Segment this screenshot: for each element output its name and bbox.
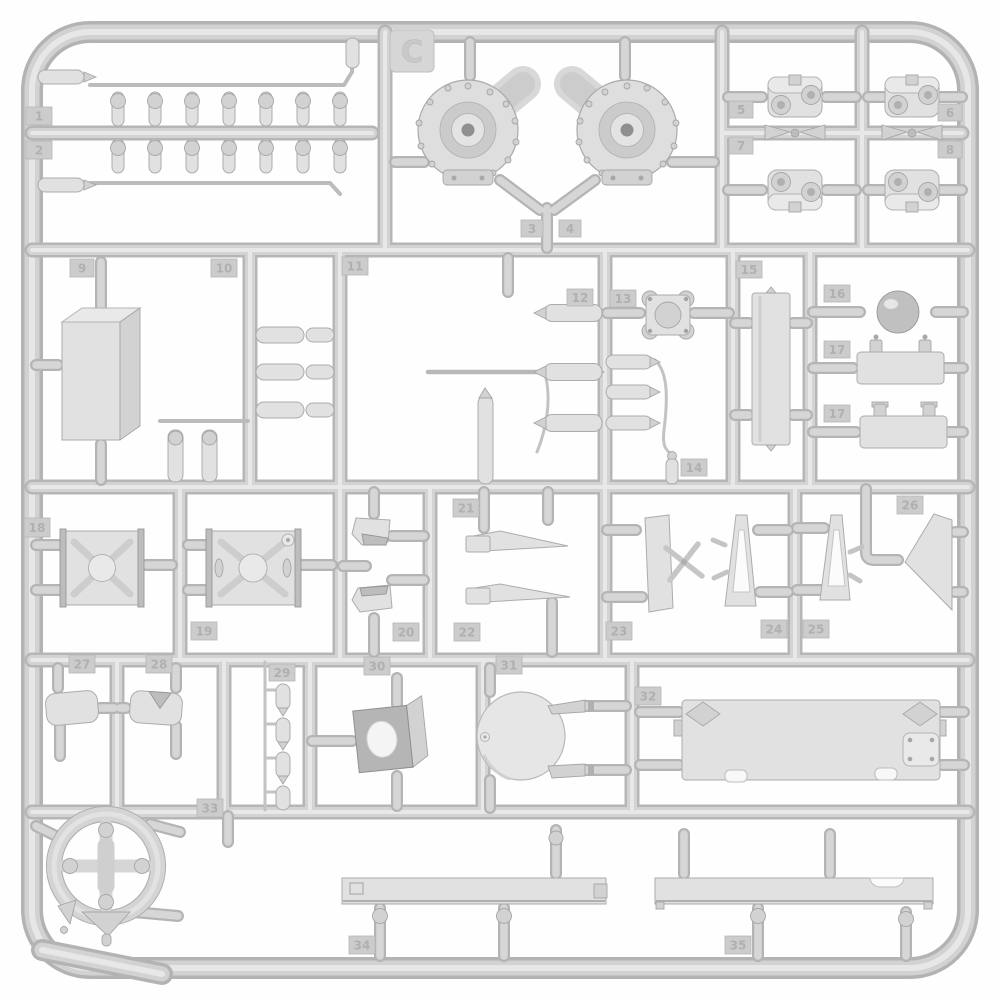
- part-tag-2: 2: [26, 141, 52, 159]
- part-round-hatch: [45, 690, 100, 726]
- part-tag-11: 11: [342, 257, 368, 275]
- svg-text:30: 30: [369, 660, 386, 674]
- svg-text:15: 15: [741, 263, 758, 277]
- part-spoked-ring-wheel: [47, 807, 166, 947]
- svg-text:10: 10: [216, 262, 233, 276]
- svg-text:5: 5: [737, 103, 745, 117]
- svg-text:16: 16: [829, 287, 846, 301]
- part-tag-7: 7: [729, 137, 753, 154]
- svg-text:3: 3: [528, 222, 536, 236]
- part-tag-18: 18: [24, 518, 50, 537]
- svg-text:17: 17: [829, 343, 846, 357]
- svg-text:21: 21: [458, 502, 475, 516]
- part-tag-16: 16: [824, 285, 850, 302]
- part-round-hatch-notched: [129, 690, 183, 726]
- part-clamp-plate-b: [860, 402, 947, 448]
- part-circular-turret-floor: [477, 692, 594, 780]
- part-engine-deck-panel: [674, 700, 946, 782]
- part-tag-26: 26: [897, 496, 923, 514]
- svg-text:24: 24: [766, 623, 783, 637]
- part-paired-cylinders: [256, 327, 334, 418]
- svg-text:4: 4: [566, 222, 574, 236]
- part-fender-strip-left: [342, 878, 607, 904]
- part-tag-20: 20: [393, 623, 419, 641]
- part-tag-23: 23: [606, 622, 632, 640]
- part-tag-28: 28: [146, 655, 172, 673]
- part-mount-plate-with-hole: [352, 696, 429, 773]
- part-bolted-square-plate: [642, 291, 694, 339]
- part-x-ribbed-panel-with-ports: [206, 529, 301, 607]
- svg-text:25: 25: [808, 623, 825, 637]
- part-x-ribbed-panel: [60, 529, 144, 607]
- part-tag-21: 21: [453, 499, 479, 517]
- svg-text:34: 34: [354, 939, 371, 953]
- part-tag-25: 25: [803, 620, 829, 638]
- svg-text:8: 8: [946, 143, 954, 157]
- part-clamp-plate-a: [857, 335, 944, 385]
- part-triangular-bracket-a: [713, 515, 756, 606]
- svg-text:27: 27: [74, 658, 91, 672]
- part-antenna-and-barrels: [428, 305, 604, 485]
- part-tag-33: 33: [197, 799, 223, 817]
- part-tag-9: 9: [70, 259, 94, 277]
- part-final-drive-housing-left: [416, 80, 523, 185]
- sprue-photo: C 1 2 3 4 5 6 7 8 9 10 11 12 13 14 15 16…: [0, 0, 1000, 1000]
- part-tag-17b: 17: [824, 405, 850, 422]
- svg-text:29: 29: [274, 666, 291, 680]
- svg-text:6: 6: [946, 106, 954, 120]
- svg-text:28: 28: [151, 658, 168, 672]
- part-tag-3: 3: [521, 220, 543, 237]
- part-tapered-plate-with-cross: [645, 515, 702, 612]
- sprue-c-illustration: C 1 2 3 4 5 6 7 8 9 10 11 12 13 14 15 16…: [0, 0, 1000, 1000]
- svg-text:22: 22: [459, 626, 476, 640]
- part-fender-wedges: [466, 531, 570, 604]
- part-tag-17a: 17: [824, 341, 850, 358]
- part-tag-12: 12: [567, 289, 593, 306]
- part-tag-22: 22: [454, 623, 480, 641]
- part-long-flat-plate: [752, 287, 790, 451]
- part-tag-4: 4: [559, 220, 581, 237]
- sprue-letter-tag: C: [390, 30, 434, 72]
- svg-text:32: 32: [640, 690, 657, 704]
- part-tag-13: 13: [610, 290, 636, 307]
- part-tag-10: 10: [211, 259, 237, 277]
- part-tag-34: 34: [349, 936, 375, 954]
- part-bullet-cylinders: [606, 355, 660, 430]
- svg-text:7: 7: [737, 139, 745, 153]
- svg-text:20: 20: [398, 626, 415, 640]
- svg-text:11: 11: [347, 260, 364, 274]
- part-tag-6: 6: [938, 104, 962, 121]
- part-tag-31: 31: [496, 656, 522, 674]
- part-tag-32: 32: [635, 687, 661, 705]
- part-bullet-set-of-four: [276, 684, 290, 810]
- part-sphere: [877, 291, 919, 333]
- part-tag-24: 24: [761, 620, 787, 638]
- part-tag-8: 8: [938, 141, 962, 158]
- part-tag-14: 14: [681, 459, 707, 476]
- svg-text:23: 23: [611, 625, 628, 639]
- part-tag-5: 5: [729, 101, 753, 118]
- svg-text:9: 9: [78, 262, 86, 276]
- svg-text:13: 13: [615, 292, 632, 306]
- part-tag-19: 19: [191, 622, 217, 640]
- svg-text:33: 33: [202, 802, 219, 816]
- svg-text:17: 17: [829, 407, 846, 421]
- svg-text:26: 26: [902, 499, 919, 513]
- part-large-wedge-plate: [905, 514, 952, 610]
- svg-text:35: 35: [730, 939, 747, 953]
- svg-text:2: 2: [35, 144, 43, 158]
- svg-text:19: 19: [196, 625, 213, 639]
- part-tag-27: 27: [69, 655, 95, 673]
- svg-text:12: 12: [572, 291, 589, 305]
- svg-text:31: 31: [501, 659, 518, 673]
- svg-text:1: 1: [35, 110, 43, 124]
- part-tag-35: 35: [725, 936, 751, 954]
- part-tag-29: 29: [269, 664, 295, 681]
- part-tag-1: 1: [26, 107, 52, 125]
- part-fender-strip-right: [655, 878, 933, 909]
- part-small-bottle: [666, 452, 678, 485]
- part-small-cylinder-rows: [38, 38, 359, 192]
- part-tag-30: 30: [364, 657, 390, 675]
- part-tag-15: 15: [736, 261, 762, 278]
- part-stowage-box: [62, 308, 217, 482]
- part-final-drive-housing-right: [572, 80, 679, 185]
- sprue-letter: C: [401, 35, 423, 70]
- svg-text:18: 18: [29, 521, 46, 535]
- svg-text:14: 14: [686, 461, 703, 475]
